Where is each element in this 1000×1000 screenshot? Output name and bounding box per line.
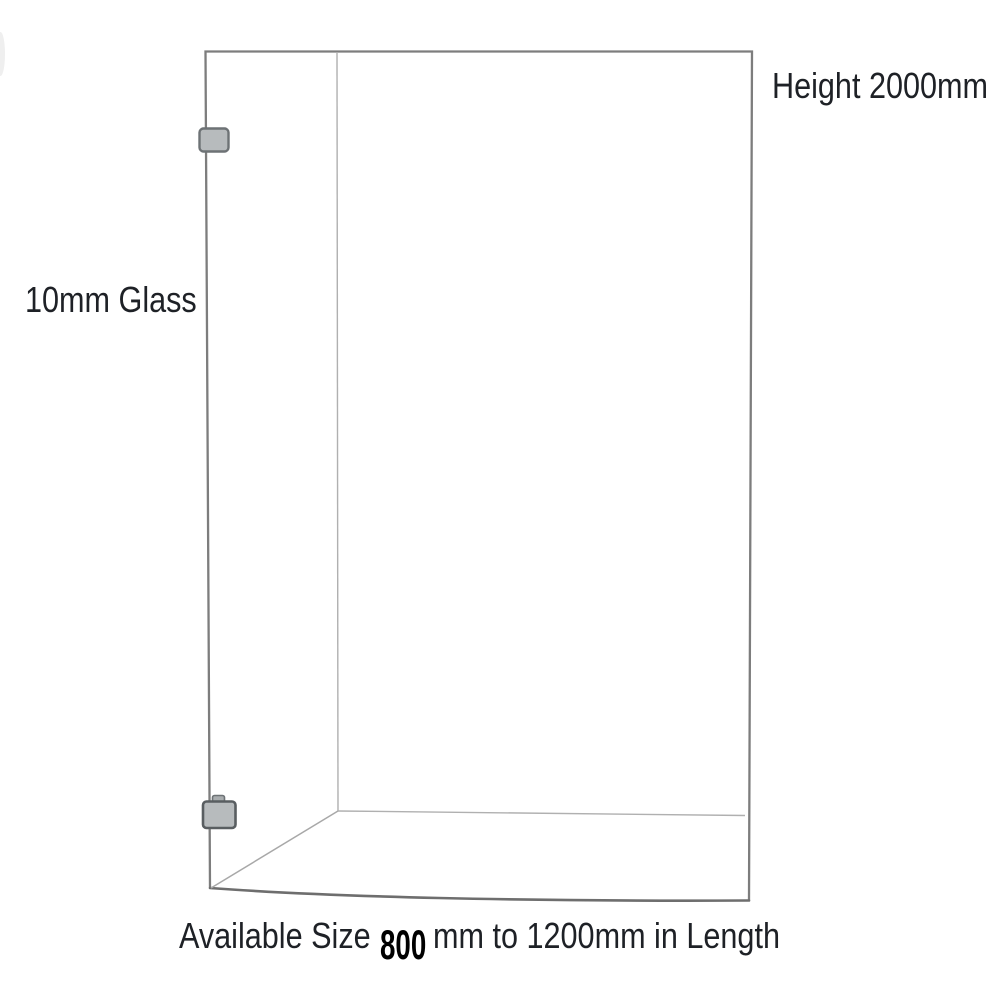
shower-screen-diagram: Height 2000mm 10mm Glass Available Size …: [0, 0, 1000, 1000]
wall-mount-clamp-icon-bottom: [203, 802, 236, 829]
available-size-label-prefix: Available Size: [179, 918, 371, 954]
available-size-label-suffix: mm to 1200mm in Length: [433, 918, 780, 954]
floor-back-line: [338, 811, 745, 816]
available-size-value: 800: [380, 924, 426, 966]
glass-thickness-label: 10mm Glass: [25, 282, 197, 318]
wall-mount-clamp-icon-top: [200, 129, 229, 152]
perspective-corner-line: [337, 52, 338, 811]
height-dimension-label: Height 2000mm: [772, 68, 988, 104]
glass-panel-outline: [206, 52, 753, 901]
glass-panel-drawing: [0, 0, 1000, 1000]
glass-panel-bottom-edge: [210, 888, 749, 901]
